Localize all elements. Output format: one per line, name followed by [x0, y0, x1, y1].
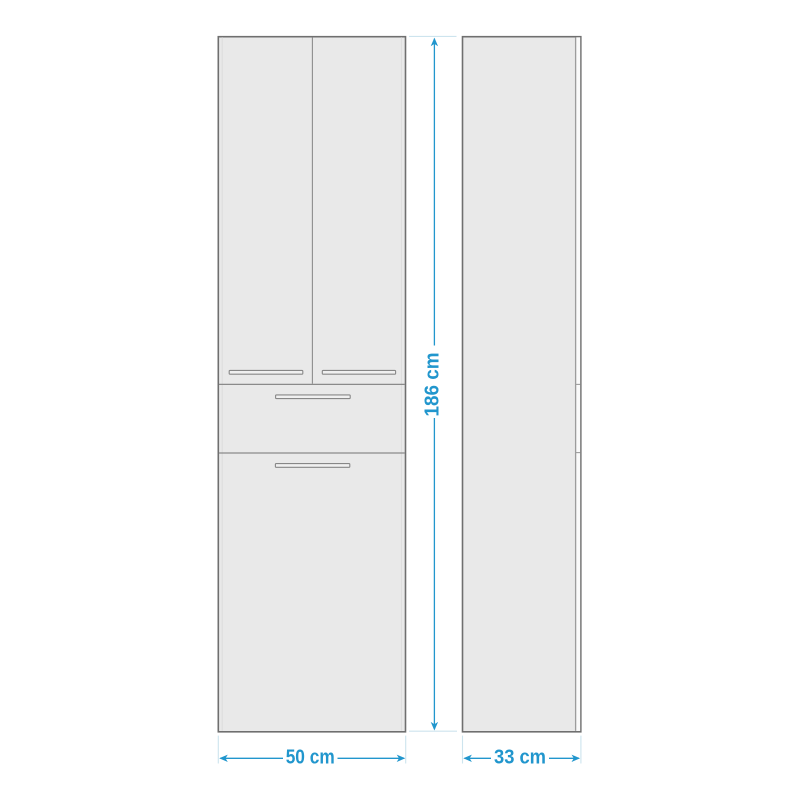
svg-text:33 cm: 33 cm [494, 746, 546, 768]
svg-text:50 cm: 50 cm [286, 746, 335, 768]
svg-text:186 cm: 186 cm [421, 353, 443, 417]
